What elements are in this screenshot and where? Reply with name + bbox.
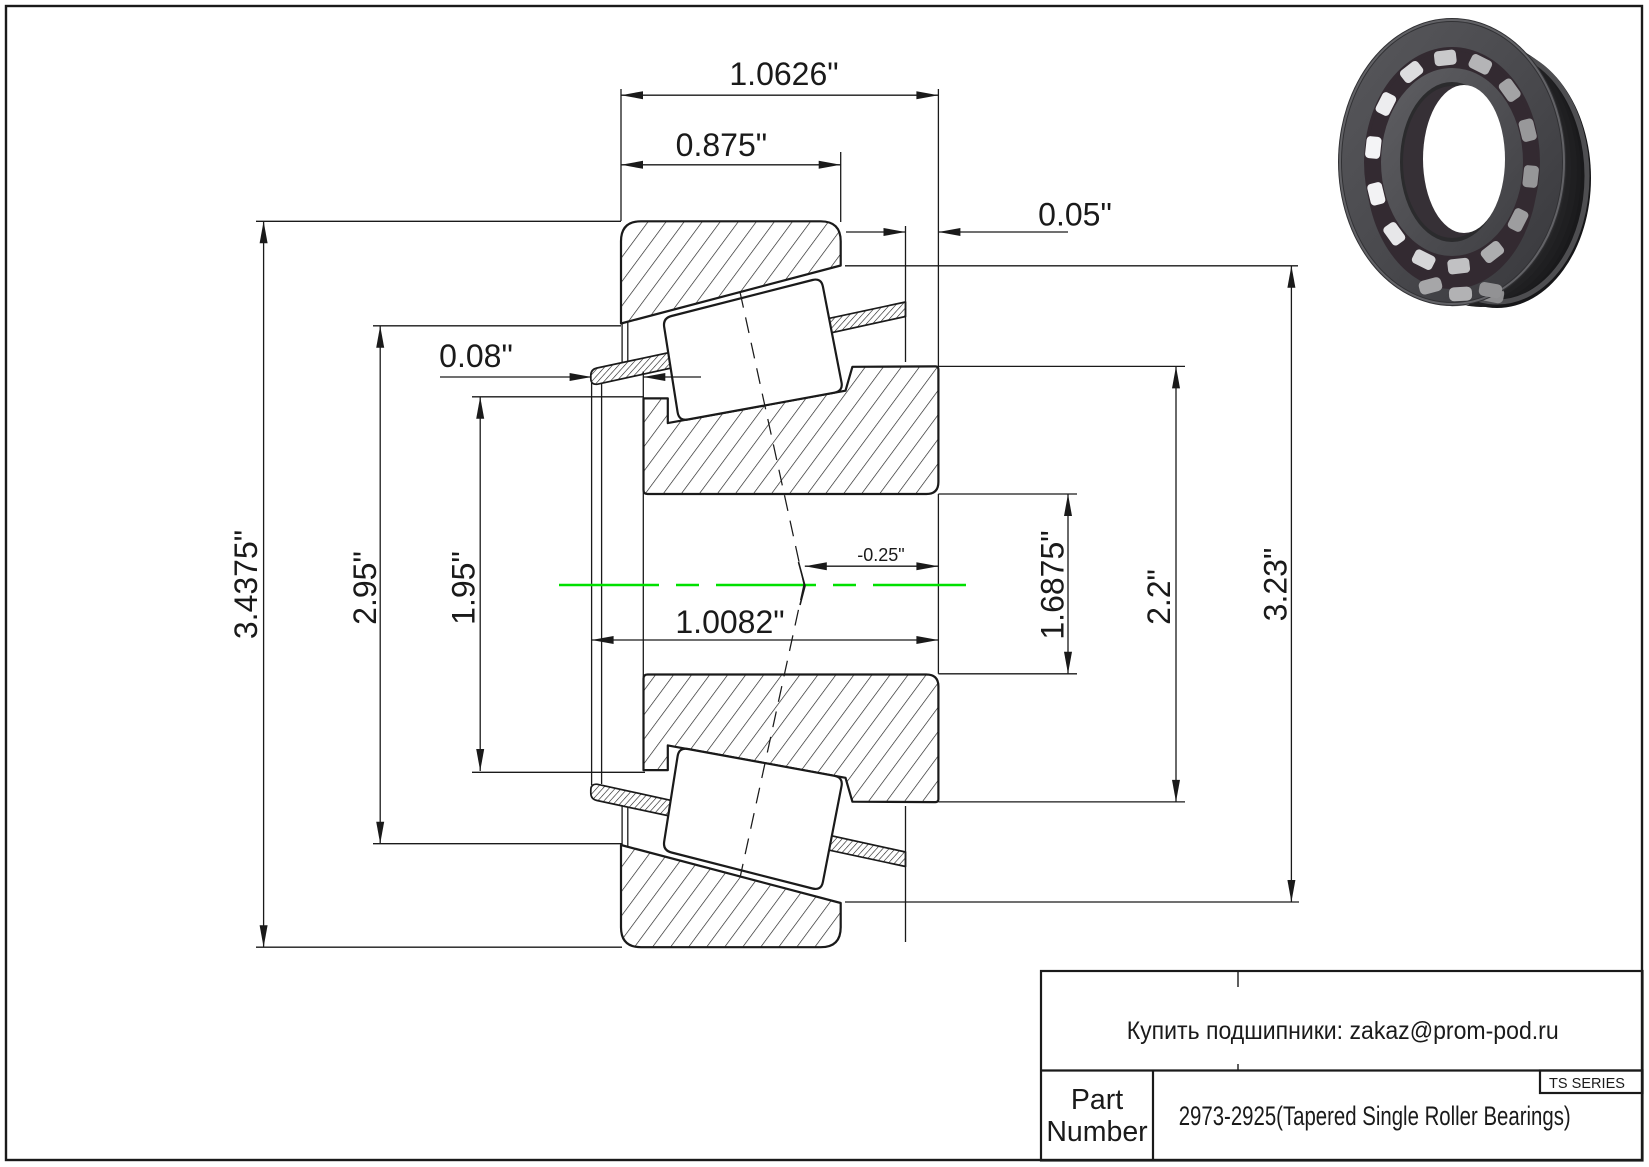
svg-text:2.2": 2.2": [1141, 569, 1177, 625]
svg-text:TS SERIES: TS SERIES: [1549, 1076, 1625, 1092]
svg-text:1.0082": 1.0082": [675, 604, 784, 640]
svg-text:Part: Part: [1071, 1084, 1123, 1116]
svg-text:2.95": 2.95": [347, 551, 383, 625]
svg-text:-0.25": -0.25": [857, 545, 904, 565]
svg-text:1.95": 1.95": [446, 551, 482, 625]
svg-text:0.08": 0.08": [439, 338, 513, 374]
svg-text:1.0626": 1.0626": [729, 56, 838, 92]
svg-text:1.6875": 1.6875": [1035, 530, 1071, 639]
svg-text:Number: Number: [1046, 1116, 1148, 1148]
svg-text:2973-2925(Tapered Single Rolle: 2973-2925(Tapered Single Roller Bearings…: [1179, 1101, 1571, 1131]
svg-text:3.23": 3.23": [1258, 548, 1294, 622]
svg-text:3.4375": 3.4375": [228, 530, 264, 639]
svg-text:Купить подшипники: zakaz@prom-: Купить подшипники: zakaz@prom-pod.ru: [1127, 1017, 1559, 1045]
svg-text:0.05": 0.05": [1038, 197, 1112, 233]
svg-text:0.875": 0.875": [676, 127, 767, 163]
